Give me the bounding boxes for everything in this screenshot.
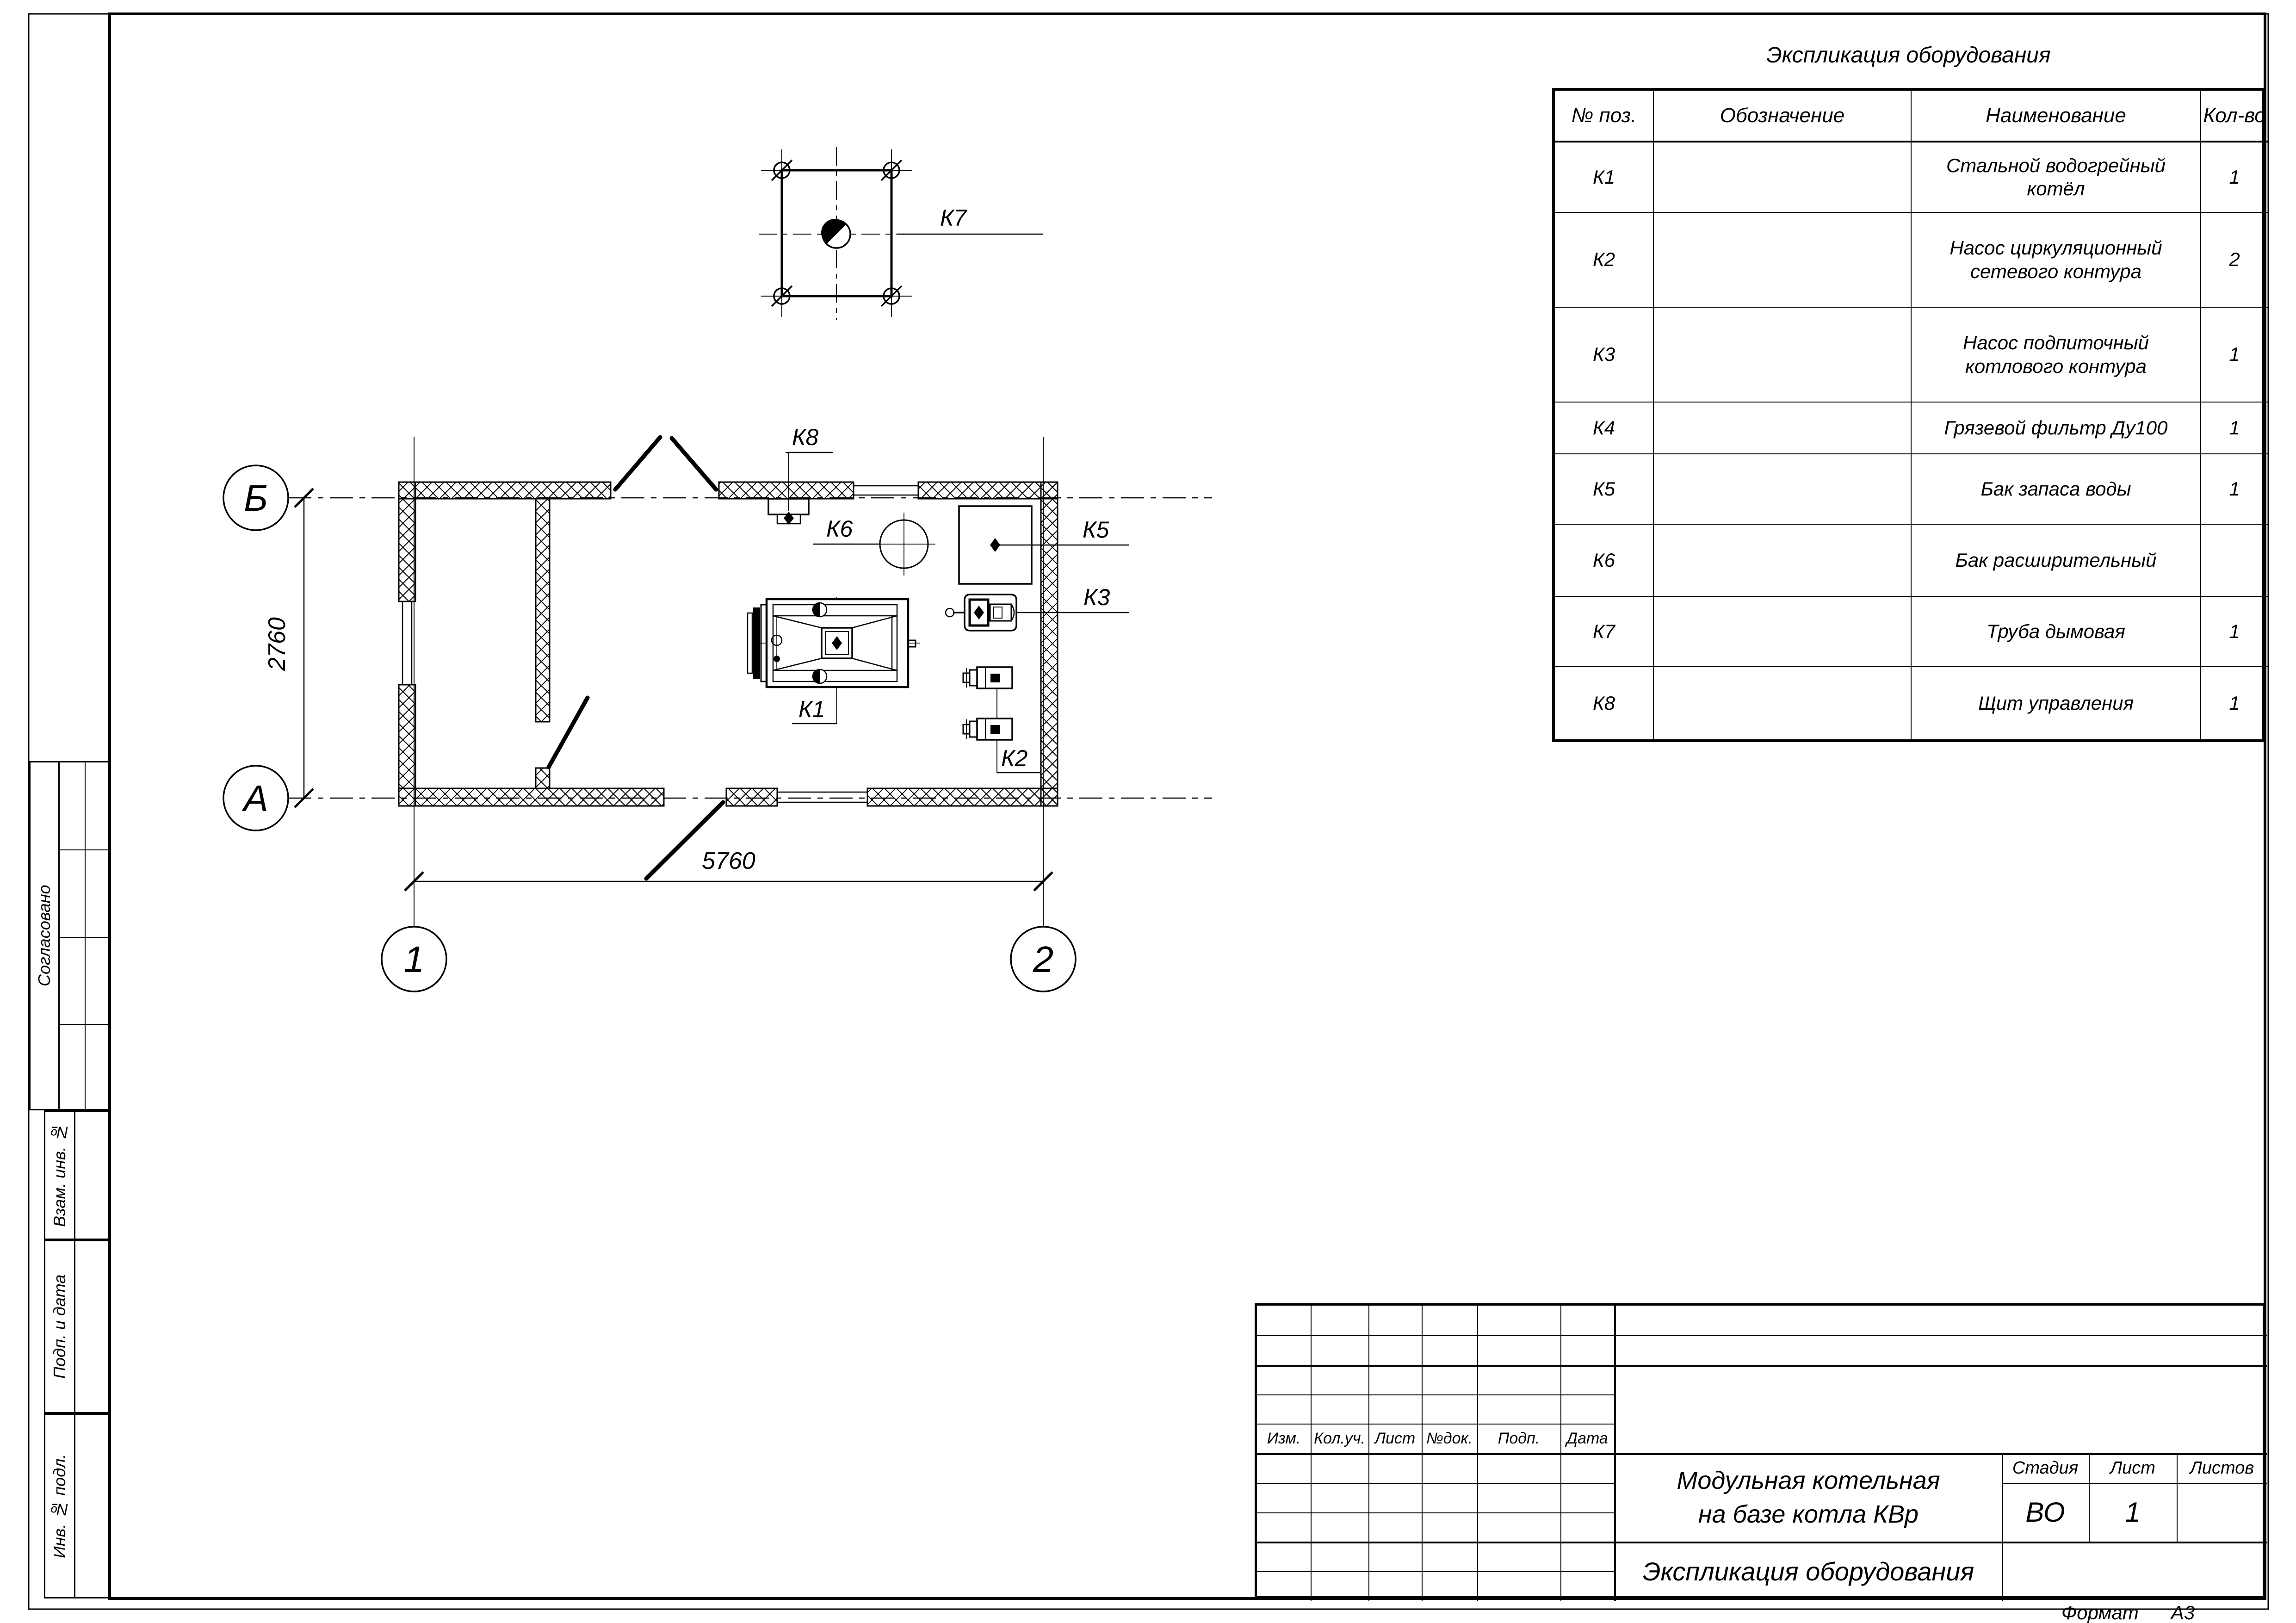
dimension-horizontal [405, 872, 1052, 891]
inv-podl-box: Инв. № подл. [44, 1413, 110, 1598]
table-row-name: Щит управления [1912, 667, 2201, 739]
table-row-pos: К5 [1555, 454, 1654, 525]
drawing-sheet: Б А 1 2 2760 5760 К7 К8 К6 К5 К3 К1 К2 Э… [0, 0, 2296, 1623]
format-value: А3 [2171, 1602, 2195, 1623]
vzam-inv-label: Взам. инв. № [45, 1112, 74, 1239]
axis-label-1: 1 [404, 939, 425, 980]
table-row-name: Насос циркуляционный сетевого контура [1912, 213, 2201, 308]
sheet-label: Лист [2089, 1453, 2178, 1484]
axis-label-b: Б [244, 477, 268, 519]
rev-col-koluch: Кол.уч. [1311, 1424, 1368, 1453]
table-row-qty: 1 [2201, 403, 2268, 454]
table-row-pos: К2 [1555, 213, 1654, 308]
table-row-qty: 1 [2201, 597, 2268, 667]
col-header-pos: № поз. [1555, 91, 1654, 142]
format-note: Формат А3 [2008, 1602, 2248, 1623]
sheet-title: Экспликация оборудования [1615, 1542, 2003, 1601]
table-row-designation [1654, 308, 1912, 403]
axis-label-a: А [241, 778, 268, 819]
table-row-designation [1654, 667, 1912, 739]
object-title: Модульная котельная на базе котла КВр [1615, 1453, 2003, 1542]
table-row-name: Насос подпиточный котлового контура [1912, 308, 2201, 403]
table-row-qty: 1 [2201, 667, 2268, 739]
label-k6: К6 [826, 516, 853, 542]
stage-value: ВО [2002, 1483, 2090, 1542]
sheet-value: 1 [2089, 1483, 2178, 1542]
table-row-qty: 1 [2201, 308, 2268, 403]
organization-cell [2002, 1542, 2267, 1601]
sheets-value [2177, 1483, 2267, 1542]
table-row-pos: К8 [1555, 667, 1654, 739]
inv-podl-label: Инв. № подл. [45, 1415, 74, 1597]
stage-label: Стадия [2002, 1453, 2090, 1484]
rev-col-izm: Изм. [1257, 1424, 1311, 1453]
table-row-name: Труба дымовая [1912, 597, 2201, 667]
axis-label-2: 2 [1033, 939, 1054, 980]
rev-col-podp: Подп. [1477, 1424, 1560, 1453]
agreed-box: Согласовано [29, 761, 110, 1110]
expansion-tank-k6 [873, 513, 935, 576]
agreed-label: Согласовано [31, 762, 58, 1109]
rev-col-data: Дата [1560, 1424, 1614, 1453]
boiler-k1 [748, 597, 920, 724]
title-block: Изм. Кол.уч. Лист №док. Подп. Дата Модул… [1255, 1303, 2265, 1598]
axis-circles [223, 465, 1076, 991]
door-leaves [549, 437, 723, 879]
podp-data-label: Подп. и дата [45, 1241, 74, 1412]
podp-data-box: Подп. и дата [44, 1240, 110, 1413]
table-row-name: Стальной водогрейный котёл [1912, 142, 2201, 213]
label-k3: К3 [1083, 584, 1110, 610]
object-title-line1: Модульная котельная [1677, 1464, 1940, 1498]
plan-texts: Б А 1 2 2760 5760 К7 К8 К6 К5 К3 К1 К2 [241, 205, 1110, 980]
format-label: Формат [2061, 1602, 2139, 1623]
dimension-vertical [295, 489, 313, 807]
table-row-designation [1654, 213, 1912, 308]
table-row-qty: 1 [2201, 454, 2268, 525]
sheets-label: Листов [2177, 1453, 2267, 1484]
label-k7: К7 [940, 205, 967, 231]
equipment-table-title: Экспликация оборудования [1552, 43, 2265, 68]
table-row-name: Бак расширительный [1912, 525, 2201, 597]
rev-col-list: Лист [1368, 1424, 1422, 1453]
label-k2: К2 [1001, 745, 1027, 771]
table-row-qty: 2 [2201, 213, 2268, 308]
dim-vertical-value: 2760 [264, 617, 291, 671]
vzam-inv-box: Взам. инв. № [44, 1110, 110, 1240]
table-row-name: Грязевой фильтр Ду100 [1912, 403, 2201, 454]
chimney-detail-k7 [759, 147, 1043, 320]
table-row-pos: К3 [1555, 308, 1654, 403]
table-row-pos: К7 [1555, 597, 1654, 667]
col-header-name: Наименование [1912, 91, 2201, 142]
table-row-designation [1654, 142, 1912, 213]
label-k1: К1 [798, 696, 825, 722]
table-row-qty: 1 [2201, 142, 2268, 213]
rev-col-ndok: №док. [1422, 1424, 1477, 1453]
label-k8: К8 [792, 424, 818, 450]
table-row-designation [1654, 525, 1912, 597]
col-header-qty: Кол-во [2201, 91, 2268, 142]
table-row-designation [1654, 403, 1912, 454]
table-row-pos: К4 [1555, 403, 1654, 454]
col-header-designation: Обозначение [1654, 91, 1912, 142]
object-title-line2: на базе котла КВр [1698, 1498, 1918, 1531]
table-row-qty [2201, 525, 2268, 597]
table-row-designation [1654, 454, 1912, 525]
table-row-pos: К6 [1555, 525, 1654, 597]
equipment-table: № поз. Обозначение Наименование Кол-во К… [1552, 88, 2265, 742]
table-row-name: Бак запаса воды [1912, 454, 2201, 525]
table-row-pos: К1 [1555, 142, 1654, 213]
feed-pump-k3 [946, 595, 1016, 631]
label-k5: К5 [1083, 517, 1109, 543]
table-row-designation [1654, 597, 1912, 667]
dim-horizontal-value: 5760 [702, 848, 755, 874]
